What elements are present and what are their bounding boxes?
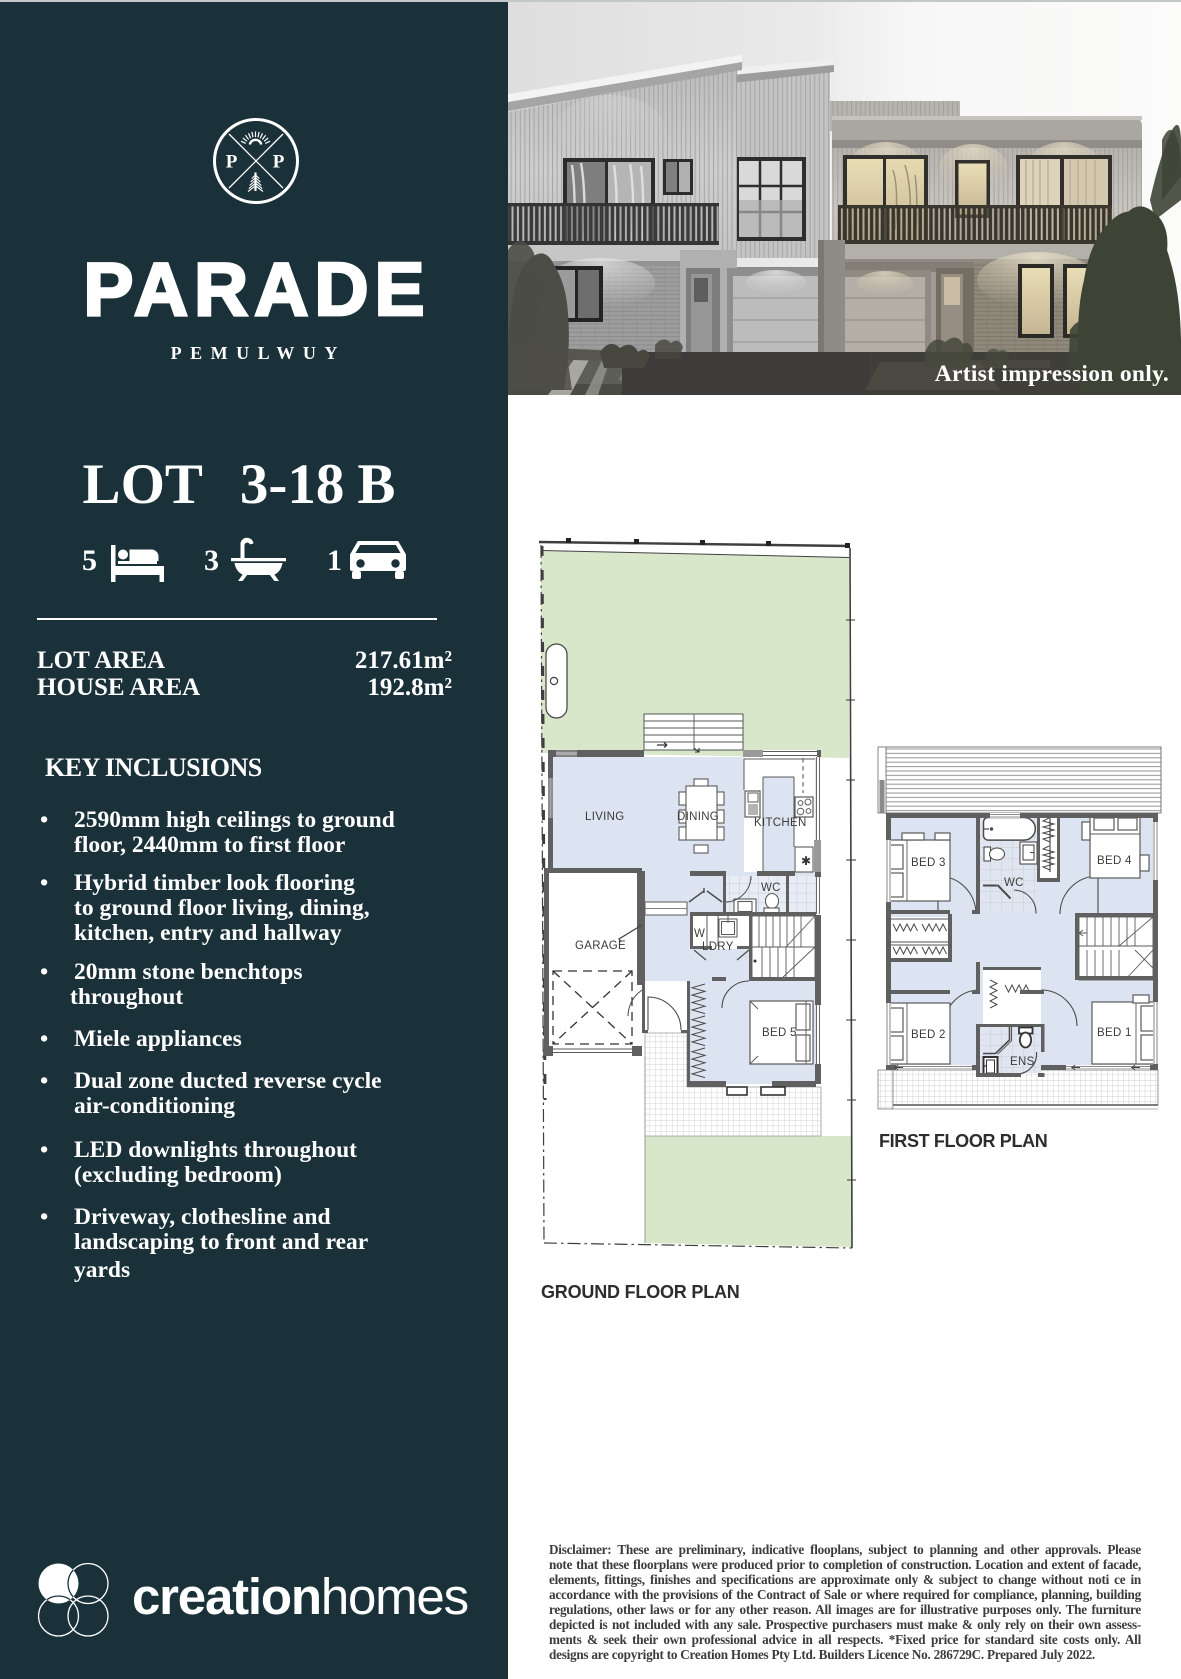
svg-text:BED 2: BED 2 [911, 1029, 946, 1041]
svg-text:LIVING: LIVING [585, 811, 625, 823]
svg-text:W: W [694, 928, 705, 940]
svg-text:✱: ✱ [801, 854, 811, 868]
svg-text:Artist impression only.: Artist impression only. [935, 361, 1169, 387]
svg-text:BED 4: BED 4 [1097, 855, 1132, 867]
svg-text:WC: WC [1004, 877, 1024, 889]
svg-text:P: P [273, 152, 285, 173]
svg-text:WC: WC [761, 882, 781, 894]
svg-text:KITCHEN: KITCHEN [754, 817, 807, 829]
svg-text:P: P [226, 152, 238, 173]
svg-text:BED 5: BED 5 [762, 1027, 797, 1039]
svg-text:BED 3: BED 3 [911, 857, 946, 869]
svg-text:LDRY: LDRY [702, 941, 734, 953]
svg-text:BED 1: BED 1 [1097, 1027, 1132, 1039]
svg-text:DINING: DINING [677, 811, 719, 823]
svg-text:GARAGE: GARAGE [575, 940, 626, 952]
svg-text:ENS: ENS [1010, 1056, 1035, 1068]
